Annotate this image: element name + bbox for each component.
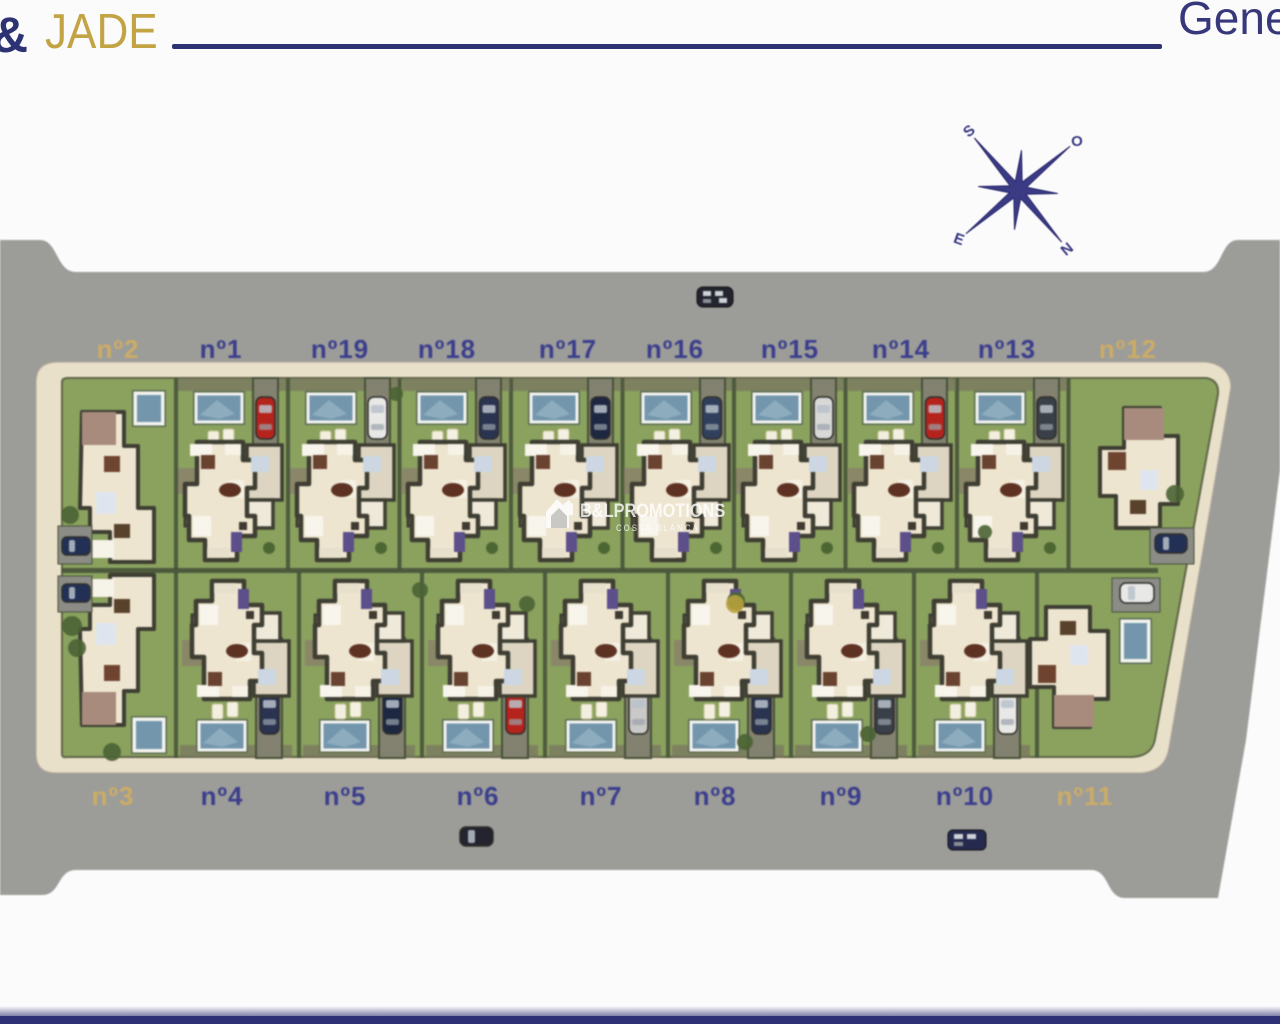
svg-text:nº18: nº18 — [418, 334, 476, 364]
svg-text:nº5: nº5 — [324, 781, 367, 811]
svg-text:nº11: nº11 — [1057, 781, 1114, 811]
svg-text:S: S — [960, 122, 979, 141]
svg-text:nº1: nº1 — [200, 334, 243, 364]
svg-text:nº8: nº8 — [694, 781, 737, 811]
svg-text:nº14: nº14 — [872, 334, 930, 364]
svg-text:nº4: nº4 — [201, 781, 244, 811]
svg-text:nº3: nº3 — [92, 781, 135, 811]
svg-text:nº16: nº16 — [646, 334, 704, 364]
svg-text:nº9: nº9 — [820, 781, 863, 811]
svg-text:nº10: nº10 — [936, 781, 994, 811]
svg-text:nº15: nº15 — [761, 334, 819, 364]
svg-text:nº19: nº19 — [311, 334, 369, 364]
svg-text:O: O — [1071, 133, 1083, 150]
svg-text:nº7: nº7 — [580, 781, 623, 811]
svg-text:nº12: nº12 — [1099, 334, 1157, 364]
svg-text:nº17: nº17 — [539, 334, 597, 364]
svg-text:nº6: nº6 — [457, 781, 500, 811]
svg-text:nº2: nº2 — [97, 334, 140, 364]
svg-text:nº13: nº13 — [978, 334, 1036, 364]
